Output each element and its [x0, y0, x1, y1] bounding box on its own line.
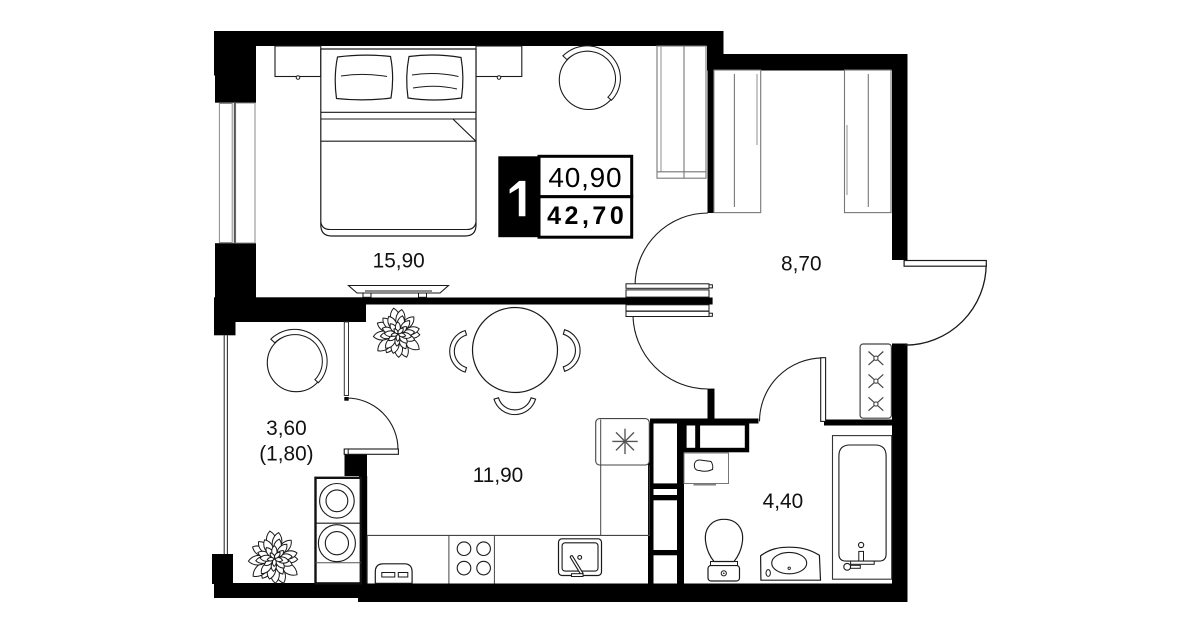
svg-text:8,70: 8,70: [781, 252, 821, 275]
svg-text:(1,80): (1,80): [259, 442, 313, 465]
svg-text:42,70: 42,70: [547, 202, 627, 230]
svg-text:15,90: 15,90: [373, 249, 425, 272]
svg-text:40,90: 40,90: [548, 162, 622, 193]
svg-text:3,60: 3,60: [266, 417, 306, 440]
svg-text:4,40: 4,40: [763, 490, 803, 513]
svg-text:11,90: 11,90: [473, 464, 524, 487]
